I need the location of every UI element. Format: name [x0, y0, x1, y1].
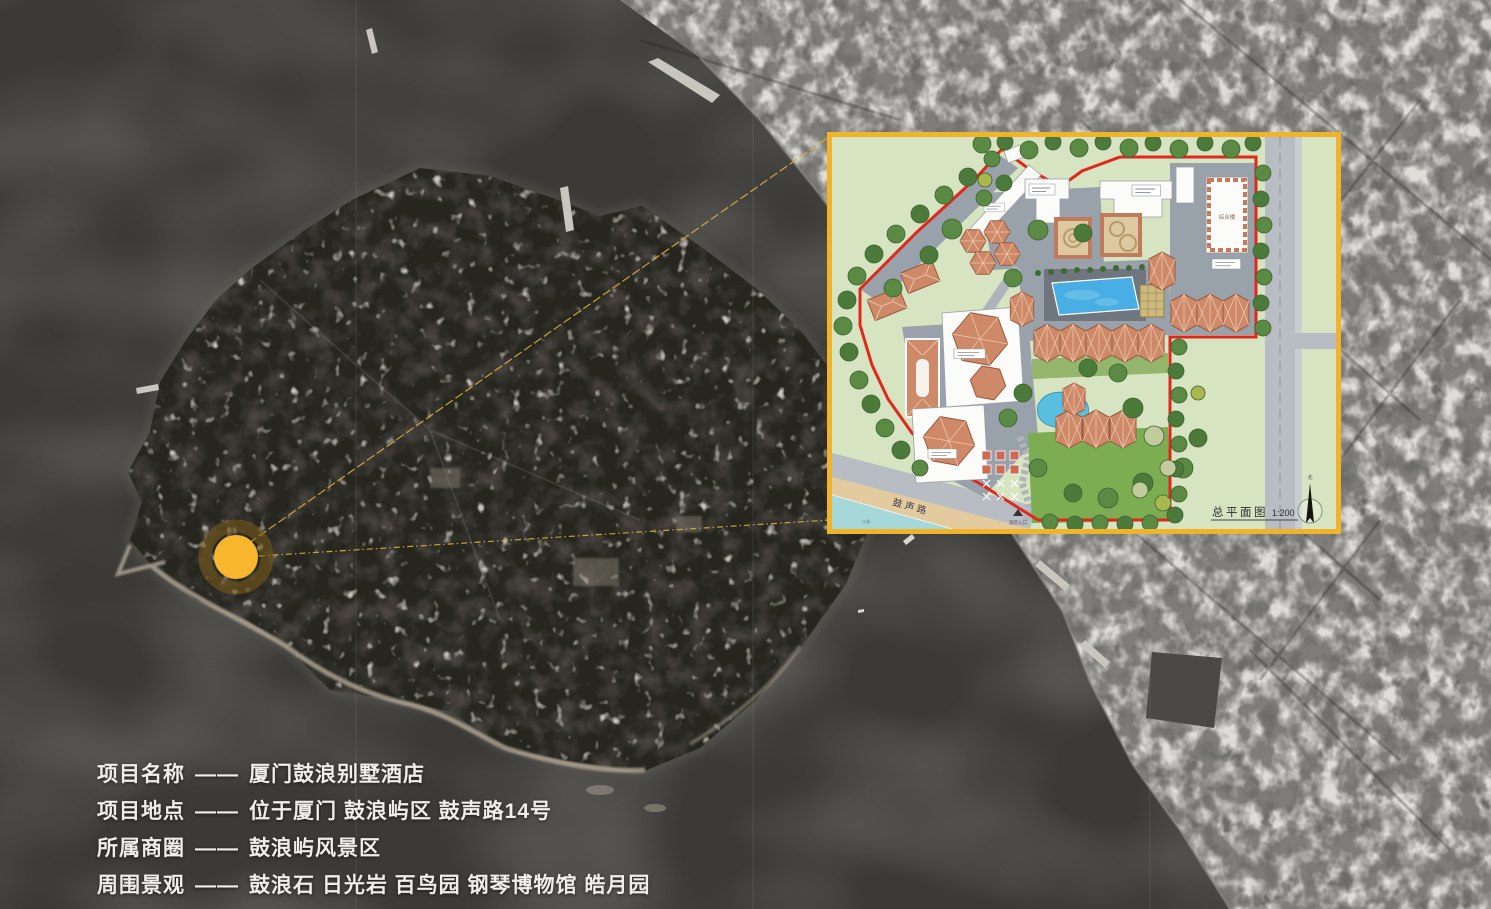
info-row-district: 所属商圈 —— 鼓浪屿风景区 [97, 838, 650, 859]
info-row-location: 项目地点 —— 位于厦门 鼓浪屿区 鼓声路14号 [97, 801, 650, 822]
info-value: 鼓浪石 日光岩 百鸟园 钢琴博物馆 皓月园 [249, 875, 650, 896]
slide: 综合楼 鼓声路 沙滩 酒店入口 总平面图 1:200 北 项目名称 —— 厦门鼓… [0, 0, 1491, 909]
info-row-name: 项目名称 —— 厦门鼓浪别墅酒店 [97, 764, 650, 785]
north-label: 北 [1307, 474, 1312, 481]
beach-label: 沙滩 [862, 518, 870, 524]
info-separator: —— [195, 764, 239, 785]
plan-scale: 1:200 [1272, 508, 1295, 518]
info-value: 厦门鼓浪别墅酒店 [249, 764, 425, 785]
location-marker [214, 535, 258, 579]
entrance-label: 酒店入口 [1009, 519, 1027, 526]
plan-title: 总平面图 [1212, 505, 1268, 519]
site-plan-inset: 综合楼 鼓声路 沙滩 酒店入口 总平面图 1:200 北 [827, 132, 1341, 534]
info-separator: —— [195, 875, 239, 896]
info-value: 鼓浪屿风景区 [249, 838, 381, 859]
master-plan: 综合楼 鼓声路 沙滩 酒店入口 总平面图 1:200 北 [832, 137, 1336, 529]
harbour-basin [1146, 652, 1222, 728]
info-separator: —— [195, 838, 239, 859]
info-label: 项目地点 [97, 801, 185, 822]
info-value: 位于厦门 鼓浪屿区 鼓声路14号 [249, 801, 552, 822]
project-info-panel: 项目名称 —— 厦门鼓浪别墅酒店 项目地点 —— 位于厦门 鼓浪屿区 鼓声路14… [97, 764, 650, 909]
info-separator: —— [195, 801, 239, 822]
info-label: 周围景观 [97, 875, 185, 896]
info-row-scenery: 周围景观 —— 鼓浪石 日光岩 百鸟园 钢琴博物馆 皓月园 [97, 875, 650, 896]
complex-building-label: 综合楼 [1219, 213, 1236, 221]
info-label: 所属商圈 [97, 838, 185, 859]
plan-pool [1044, 269, 1146, 321]
info-label: 项目名称 [97, 764, 185, 785]
